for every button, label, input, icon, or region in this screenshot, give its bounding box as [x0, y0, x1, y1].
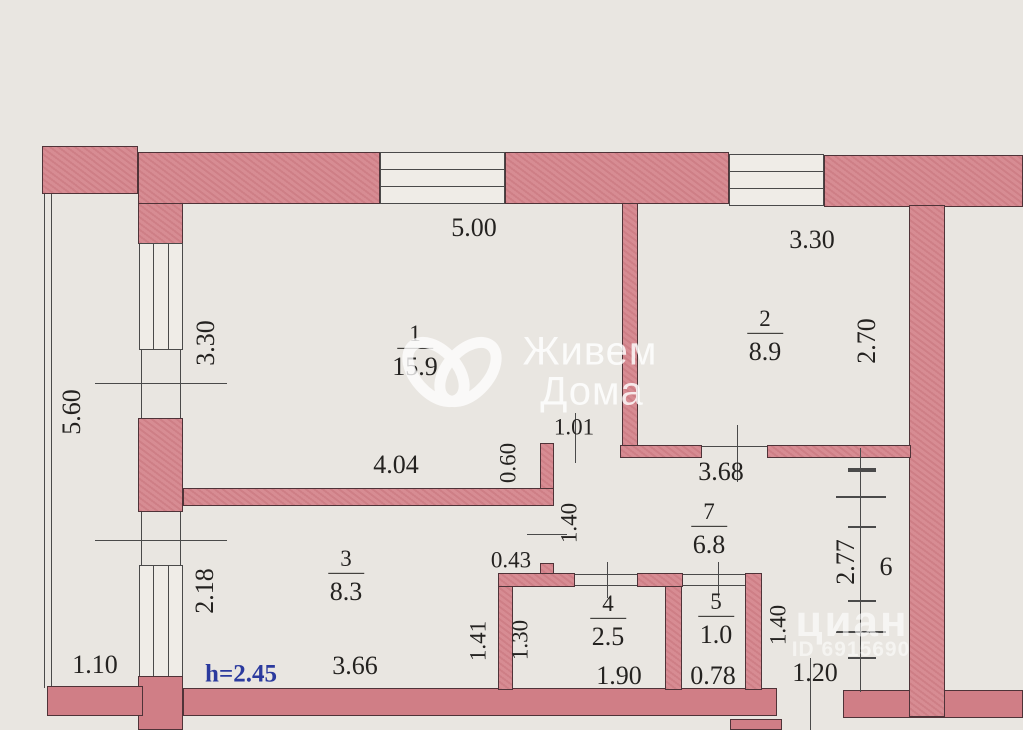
room-number: 7: [691, 500, 727, 527]
dimension-line: [95, 540, 227, 541]
room-label-6: 6: [880, 554, 893, 580]
door-face-line: [180, 512, 181, 565]
wall-hall-top-b: [767, 445, 911, 458]
door-face-line: [683, 585, 745, 586]
door-face-line: [575, 585, 637, 586]
wall-balcony-bottom: [47, 686, 143, 716]
wall-top-3: [824, 155, 1023, 207]
room-label-5: 5 1.0: [698, 590, 734, 650]
dimension-line: [95, 383, 227, 384]
dim-hall-right: 1.40: [767, 605, 790, 645]
wall-room4-room5-top: [637, 573, 683, 587]
dim-balcony-left: 5.60: [59, 389, 85, 435]
wall-hall-top-a: [620, 445, 702, 458]
room-area: 8.3: [328, 576, 364, 607]
room-area: 8.9: [747, 336, 783, 367]
door-face-line: [141, 512, 142, 565]
dim-room5-bottom: 0.78: [690, 663, 736, 689]
dim-door-140-left: 1.40: [558, 503, 581, 543]
wall-room5-right: [745, 573, 762, 690]
room-number: 5: [698, 590, 734, 617]
room-label-2: 2 8.9: [747, 307, 783, 367]
door-face-line: [683, 574, 745, 575]
dim-room2-top: 3.30: [789, 227, 835, 253]
watermark-zhivem: Живем: [523, 330, 658, 375]
watermark-doma: Дома: [540, 370, 644, 415]
dim-room3-bottom: 3.66: [332, 653, 378, 679]
watermark-cian-id: ID 6915690: [792, 638, 911, 662]
dim-door-101: 1.01: [554, 416, 594, 439]
wall-right: [909, 205, 945, 717]
dim-balcony-bottom: 1.10: [72, 652, 118, 678]
wall-room4-room5: [665, 586, 682, 690]
dim-corridor-right: 2.77: [833, 539, 859, 585]
wall-room1-room3: [183, 488, 554, 506]
floor-plan-scan: 5.00 3.30 3.30 2.70 5.60 4.04 0.60 1.01 …: [0, 0, 1023, 730]
wall-left-stem: [138, 203, 183, 244]
balcony-edge-line: [51, 194, 52, 688]
door-face-line: [702, 446, 767, 447]
window-room2: [729, 154, 824, 206]
wall-room4-top-left: [498, 573, 575, 587]
wall-balcony-top: [42, 146, 138, 194]
dim-room4-bottom: 1.90: [596, 663, 642, 689]
dimension-tick: [836, 496, 886, 498]
wall-bottom-left: [183, 688, 777, 716]
dim-room1-bottom: 4.04: [373, 452, 419, 478]
room-number: 4: [590, 592, 626, 619]
dim-hall-top: 3.68: [698, 459, 744, 485]
room-label-4: 4 2.5: [590, 592, 626, 652]
room-area: 6.8: [691, 529, 727, 560]
door-face-line: [180, 350, 181, 418]
dim-jog-060: 0.60: [497, 443, 520, 483]
window-room1: [380, 152, 505, 204]
wall-left-mid: [138, 418, 183, 512]
wall-top-2: [505, 152, 729, 204]
dimension-tick: [848, 526, 876, 528]
room-label-3: 3 8.3: [328, 547, 364, 607]
dim-entry-bottom: 1.20: [792, 660, 838, 686]
wall-top-1: [138, 152, 380, 204]
room-number: 2: [747, 307, 783, 334]
wall-stub-below: [730, 719, 782, 730]
zhivem-doma-heart-logo-icon: [396, 322, 508, 426]
room-label-7: 7 6.8: [691, 500, 727, 560]
balcony-edge-line: [44, 194, 45, 688]
window-balcony-room3: [139, 565, 183, 677]
dim-room4-left: 1.30: [509, 620, 532, 660]
dim-jog-043: 0.43: [491, 549, 531, 572]
dimension-tick: [848, 468, 876, 472]
dim-room3-left: 2.18: [192, 568, 218, 614]
room-area: 1.0: [698, 619, 734, 650]
dim-room1-top: 5.00: [451, 215, 497, 241]
window-balcony-room1: [139, 243, 183, 350]
ceiling-height-note: h=2.45: [205, 662, 277, 687]
wall-left-pillar: [138, 676, 183, 730]
door-face-line: [141, 350, 142, 418]
floor-plan: 5.00 3.30 3.30 2.70 5.60 4.04 0.60 1.01 …: [0, 0, 1023, 730]
room-number: 3: [328, 547, 364, 574]
dim-room1-left: 3.30: [193, 320, 219, 366]
dim-room2-right: 2.70: [854, 318, 880, 364]
dim-room3-right: 1.41: [467, 621, 490, 661]
door-face-line: [575, 574, 637, 575]
room-area: 2.5: [590, 621, 626, 652]
